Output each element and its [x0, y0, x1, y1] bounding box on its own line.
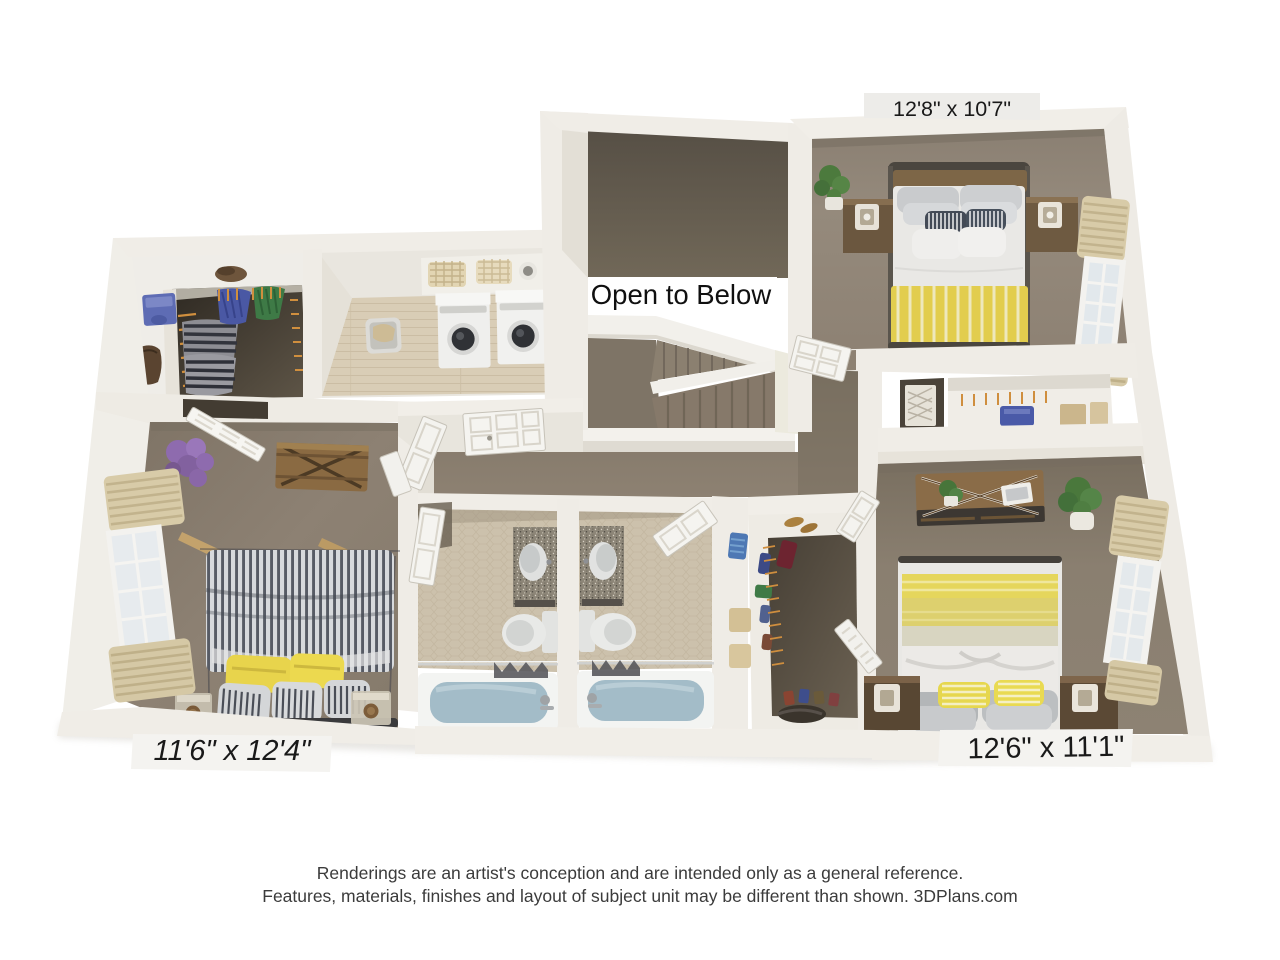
svg-text:12'6" x 11'1": 12'6" x 11'1" — [967, 731, 1124, 766]
svg-text:Open to Below: Open to Below — [591, 279, 772, 310]
svg-text:11'6" x 12'4": 11'6" x 12'4" — [154, 735, 313, 767]
svg-text:12'8" x 10'7": 12'8" x 10'7" — [893, 97, 1011, 121]
svg-text:Features, materials, finishes: Features, materials, finishes and layout… — [262, 886, 1018, 906]
svg-text:Renderings are an artist's con: Renderings are an artist's conception an… — [317, 863, 963, 883]
